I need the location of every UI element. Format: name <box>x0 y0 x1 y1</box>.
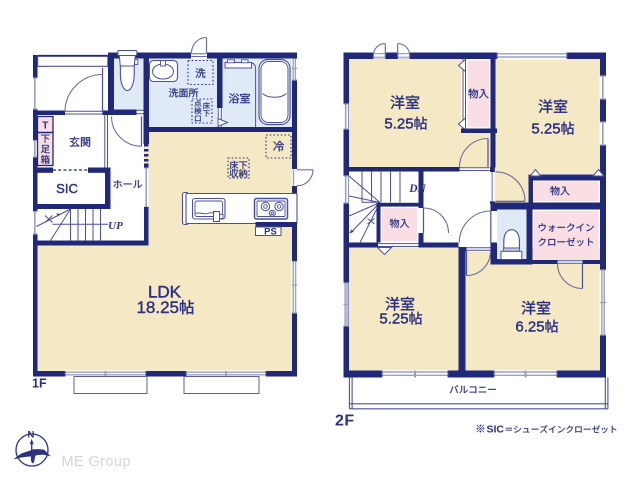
svg-text:18.25: 18.25 <box>136 298 179 317</box>
svg-text:PS: PS <box>264 226 277 237</box>
svg-text:DN: DN <box>408 183 426 195</box>
svg-text:ME Group: ME Group <box>62 454 131 470</box>
svg-text:SIC: SIC <box>487 424 505 436</box>
svg-text:SIC: SIC <box>56 181 78 196</box>
svg-text:6.25: 6.25 <box>515 319 544 336</box>
svg-text:1F: 1F <box>32 377 47 391</box>
svg-text:5.25: 5.25 <box>531 121 560 138</box>
svg-text:T: T <box>42 121 48 132</box>
svg-text:2F: 2F <box>335 413 355 430</box>
svg-text:UP: UP <box>108 220 123 232</box>
svg-text:N: N <box>27 429 34 440</box>
svg-text:5.25: 5.25 <box>384 116 413 133</box>
svg-text:5.25: 5.25 <box>379 311 408 328</box>
